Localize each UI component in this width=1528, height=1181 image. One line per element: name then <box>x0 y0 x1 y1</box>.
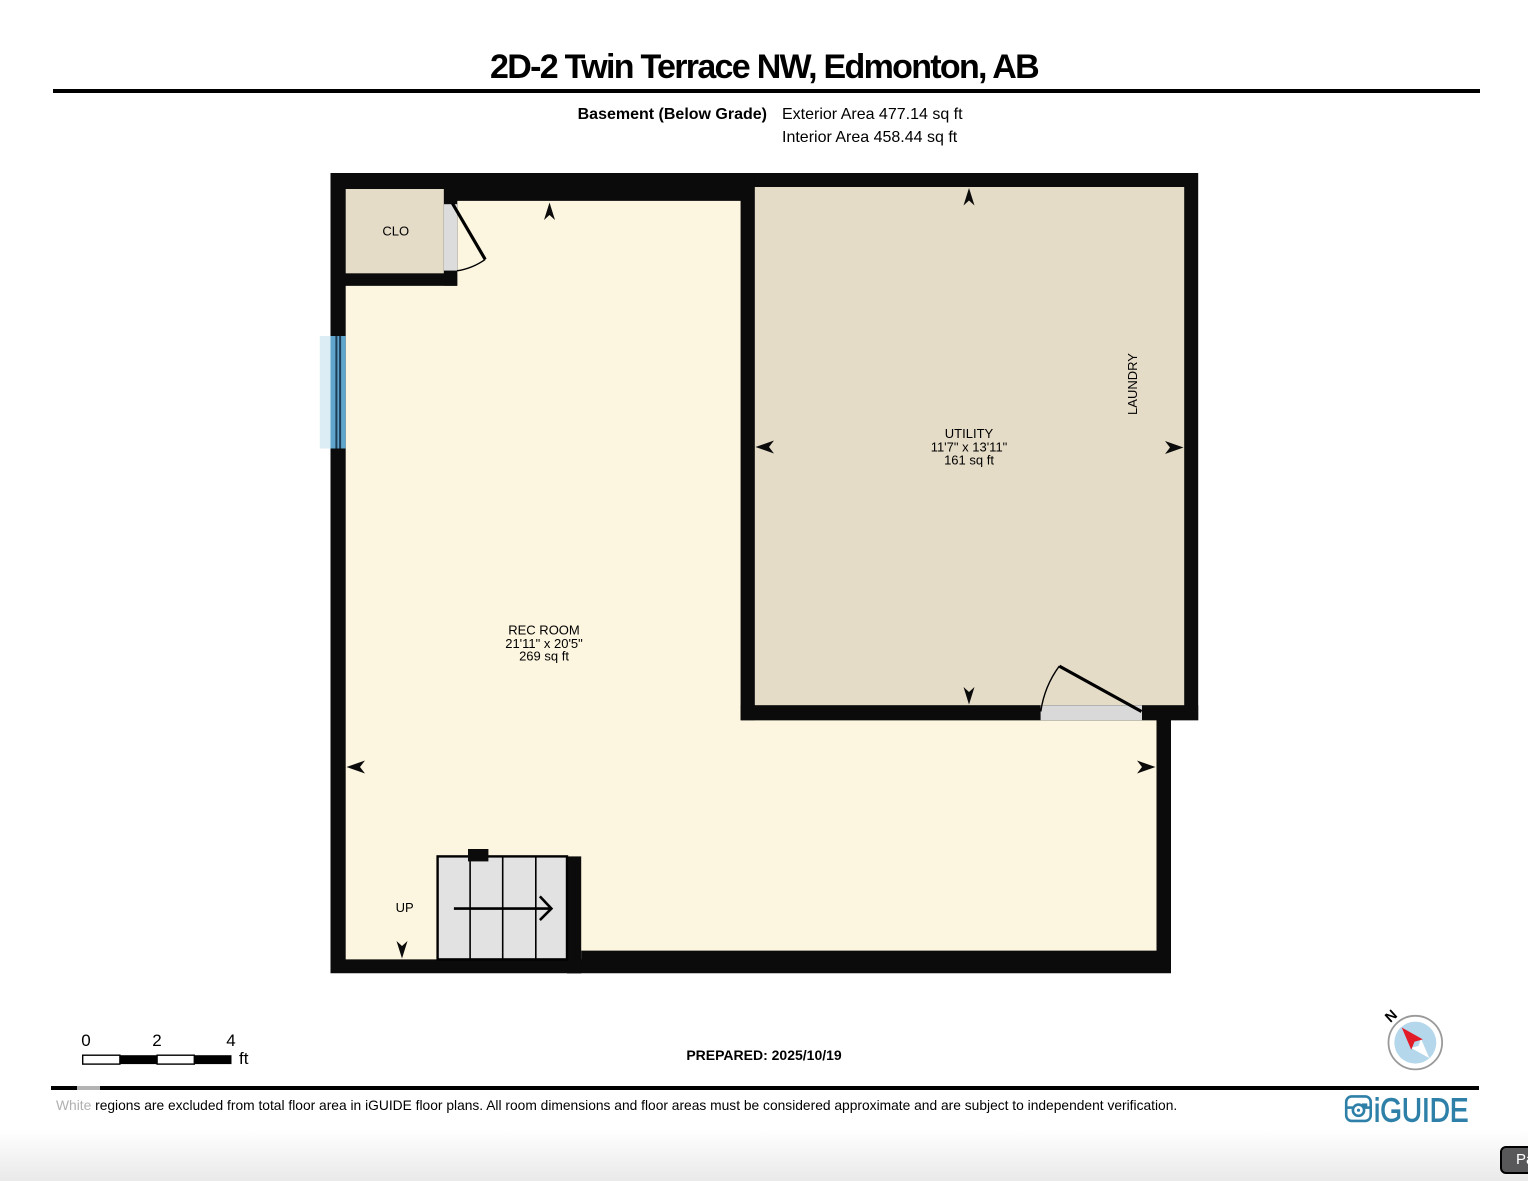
svg-text:UP: UP <box>396 900 414 915</box>
svg-text:iGUIDE: iGUIDE <box>1374 1093 1468 1127</box>
svg-text:161 sq ft: 161 sq ft <box>944 453 994 468</box>
svg-text:CLO: CLO <box>382 224 409 239</box>
svg-text:269 sq ft: 269 sq ft <box>519 649 569 664</box>
svg-text:LAUNDRY: LAUNDRY <box>1125 353 1140 415</box>
